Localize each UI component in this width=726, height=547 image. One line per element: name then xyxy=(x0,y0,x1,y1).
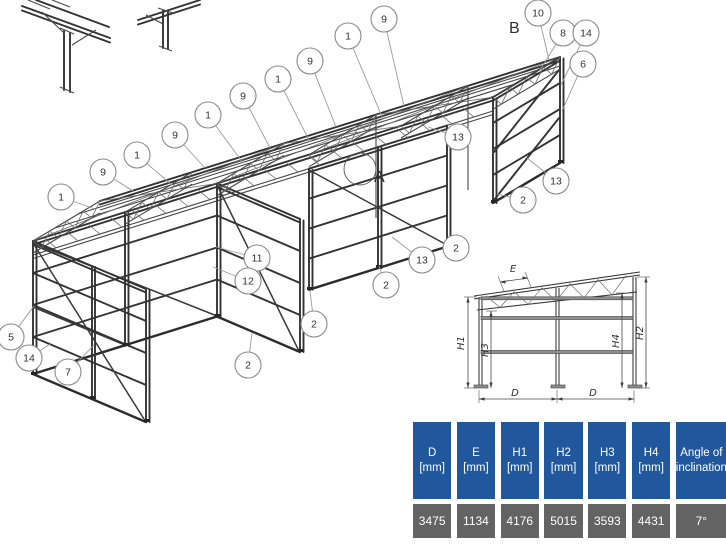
dimension-labels: EH1H3H4H2DD xyxy=(456,264,646,399)
header-line2: [mm] xyxy=(595,461,621,476)
callout-5: 5 xyxy=(0,306,34,350)
header-line2: [mm] xyxy=(507,461,533,476)
table-value-5: 4431 xyxy=(632,504,670,538)
dim-label-E: E xyxy=(510,264,517,275)
header-line2: inclination xyxy=(676,461,726,476)
callout-number: 12 xyxy=(242,276,254,288)
dim-label-H3: H3 xyxy=(480,343,491,357)
callout-leader xyxy=(250,333,252,352)
table-value-6: 7° xyxy=(676,504,726,538)
callout-9: 9 xyxy=(297,48,336,127)
connection-detail-fragments xyxy=(22,0,200,93)
header-line2: [mm] xyxy=(463,461,489,476)
callout-2: 2 xyxy=(235,333,261,378)
callout-number: 14 xyxy=(580,28,592,40)
table-header-d: D[mm] xyxy=(413,422,451,499)
callout-number: 8 xyxy=(560,28,566,40)
callout-leader xyxy=(114,179,133,191)
callout-leader xyxy=(392,237,411,252)
callout-number: 2 xyxy=(311,319,317,331)
callout-9: 9 xyxy=(90,159,133,191)
callout-leader xyxy=(74,202,95,210)
callout-leader xyxy=(184,145,205,168)
header-line2: [mm] xyxy=(419,461,445,476)
dim-label-H2: H2 xyxy=(635,326,646,340)
detail-a-marker-circle xyxy=(344,153,376,185)
callout-1: 1 xyxy=(195,102,243,163)
drawing-sheet: EH1H3H4H2DD 9191919191108146131321112213… xyxy=(0,0,726,547)
callout-leader xyxy=(527,158,545,173)
callout-number: 7 xyxy=(65,367,71,379)
header-line1: Angle of xyxy=(680,446,722,461)
table-value-2: 4176 xyxy=(501,504,539,538)
dim-label-D: D xyxy=(511,388,519,399)
callout-13: 13 xyxy=(392,237,435,273)
callout-number: 10 xyxy=(532,8,544,20)
callout-number: 9 xyxy=(307,56,313,68)
callout-number: 6 xyxy=(580,59,586,71)
table-header-h3: H3[mm] xyxy=(588,422,626,499)
view-letter-B: B xyxy=(509,20,520,37)
table-value-4: 3593 xyxy=(588,504,626,538)
table-value-3: 5015 xyxy=(544,504,582,538)
callout-2: 2 xyxy=(497,187,536,213)
header-line2: [mm] xyxy=(551,461,577,476)
table-value-1: 1134 xyxy=(457,504,495,538)
header-line1: E xyxy=(472,446,480,461)
callout-number: 9 xyxy=(100,167,106,179)
table-value-0: 3475 xyxy=(413,504,451,538)
header-line1: D xyxy=(428,446,436,461)
header-line1: H1 xyxy=(512,446,527,461)
callout-number: 5 xyxy=(8,332,14,344)
callout-number: 9 xyxy=(240,91,246,103)
callout-leader xyxy=(387,32,404,106)
callout-number: 13 xyxy=(452,132,464,144)
callout-13: 13 xyxy=(428,124,471,150)
roof-eave-beams xyxy=(33,57,560,245)
callout-6: 6 xyxy=(562,51,596,111)
header-line1: H2 xyxy=(556,446,571,461)
callout-10: 10 xyxy=(525,0,551,60)
callout-leader xyxy=(353,48,383,119)
callout-number: 13 xyxy=(416,255,428,267)
header-line1: H3 xyxy=(600,446,615,461)
table-header-h2: H2[mm] xyxy=(544,422,582,499)
elevation-view: EH1H3H4H2DD xyxy=(456,264,650,403)
callout-leader xyxy=(40,344,50,351)
callout-1: 1 xyxy=(48,184,95,210)
table-header-angle-of: Angle ofinclination xyxy=(676,422,726,499)
callout-2: 2 xyxy=(373,266,399,298)
callout-9: 9 xyxy=(371,6,404,106)
callout-number: 2 xyxy=(383,280,389,292)
callout-9: 9 xyxy=(162,122,205,168)
callout-leader xyxy=(249,108,270,148)
callout-leader xyxy=(540,45,556,71)
callout-number: 1 xyxy=(275,74,281,86)
callout-leader xyxy=(310,291,312,311)
isometric-structure-view xyxy=(31,57,564,422)
callout-leader xyxy=(19,306,34,326)
callout-number: 1 xyxy=(58,192,64,204)
callout-number: 1 xyxy=(134,150,140,162)
view-letter-A: A xyxy=(374,169,385,186)
callout-number: 9 xyxy=(381,14,387,26)
table-header-h1: H1[mm] xyxy=(501,422,539,499)
callout-leader xyxy=(216,126,243,163)
callout-number: 11 xyxy=(252,253,263,265)
header-line1: H4 xyxy=(644,446,659,461)
callout-number: 13 xyxy=(550,176,562,188)
callout-7: 7 xyxy=(55,345,94,385)
callout-number: 2 xyxy=(453,243,459,255)
dim-label-H4: H4 xyxy=(611,334,622,348)
dim-label-H1: H1 xyxy=(456,336,467,350)
callout-number: 1 xyxy=(345,31,351,43)
callout-14: 14 xyxy=(16,344,50,371)
callout-1: 1 xyxy=(124,142,172,185)
callout-9: 9 xyxy=(230,83,270,148)
table-header-e: E[mm] xyxy=(457,422,495,499)
specification-table: D[mm]E[mm]H1[mm]H2[mm]H3[mm]H4[mm]Angle … xyxy=(413,422,726,538)
callout-number: 1 xyxy=(205,110,211,122)
callout-1: 1 xyxy=(335,23,383,119)
callout-leader xyxy=(284,91,310,142)
table-header-h4: H4[mm] xyxy=(632,422,670,499)
header-line2: [mm] xyxy=(638,461,664,476)
callout-number: 9 xyxy=(172,130,178,142)
callout-1: 1 xyxy=(265,66,310,142)
callout-2: 2 xyxy=(443,235,469,261)
callout-2: 2 xyxy=(301,291,327,337)
callout-leader xyxy=(315,74,336,127)
callout-number: 2 xyxy=(520,195,526,207)
callout-leader xyxy=(541,26,549,60)
roof-trusses xyxy=(33,57,560,253)
dim-label-D: D xyxy=(589,388,597,399)
callout-number: 14 xyxy=(23,353,35,365)
callout-number: 2 xyxy=(245,360,251,372)
